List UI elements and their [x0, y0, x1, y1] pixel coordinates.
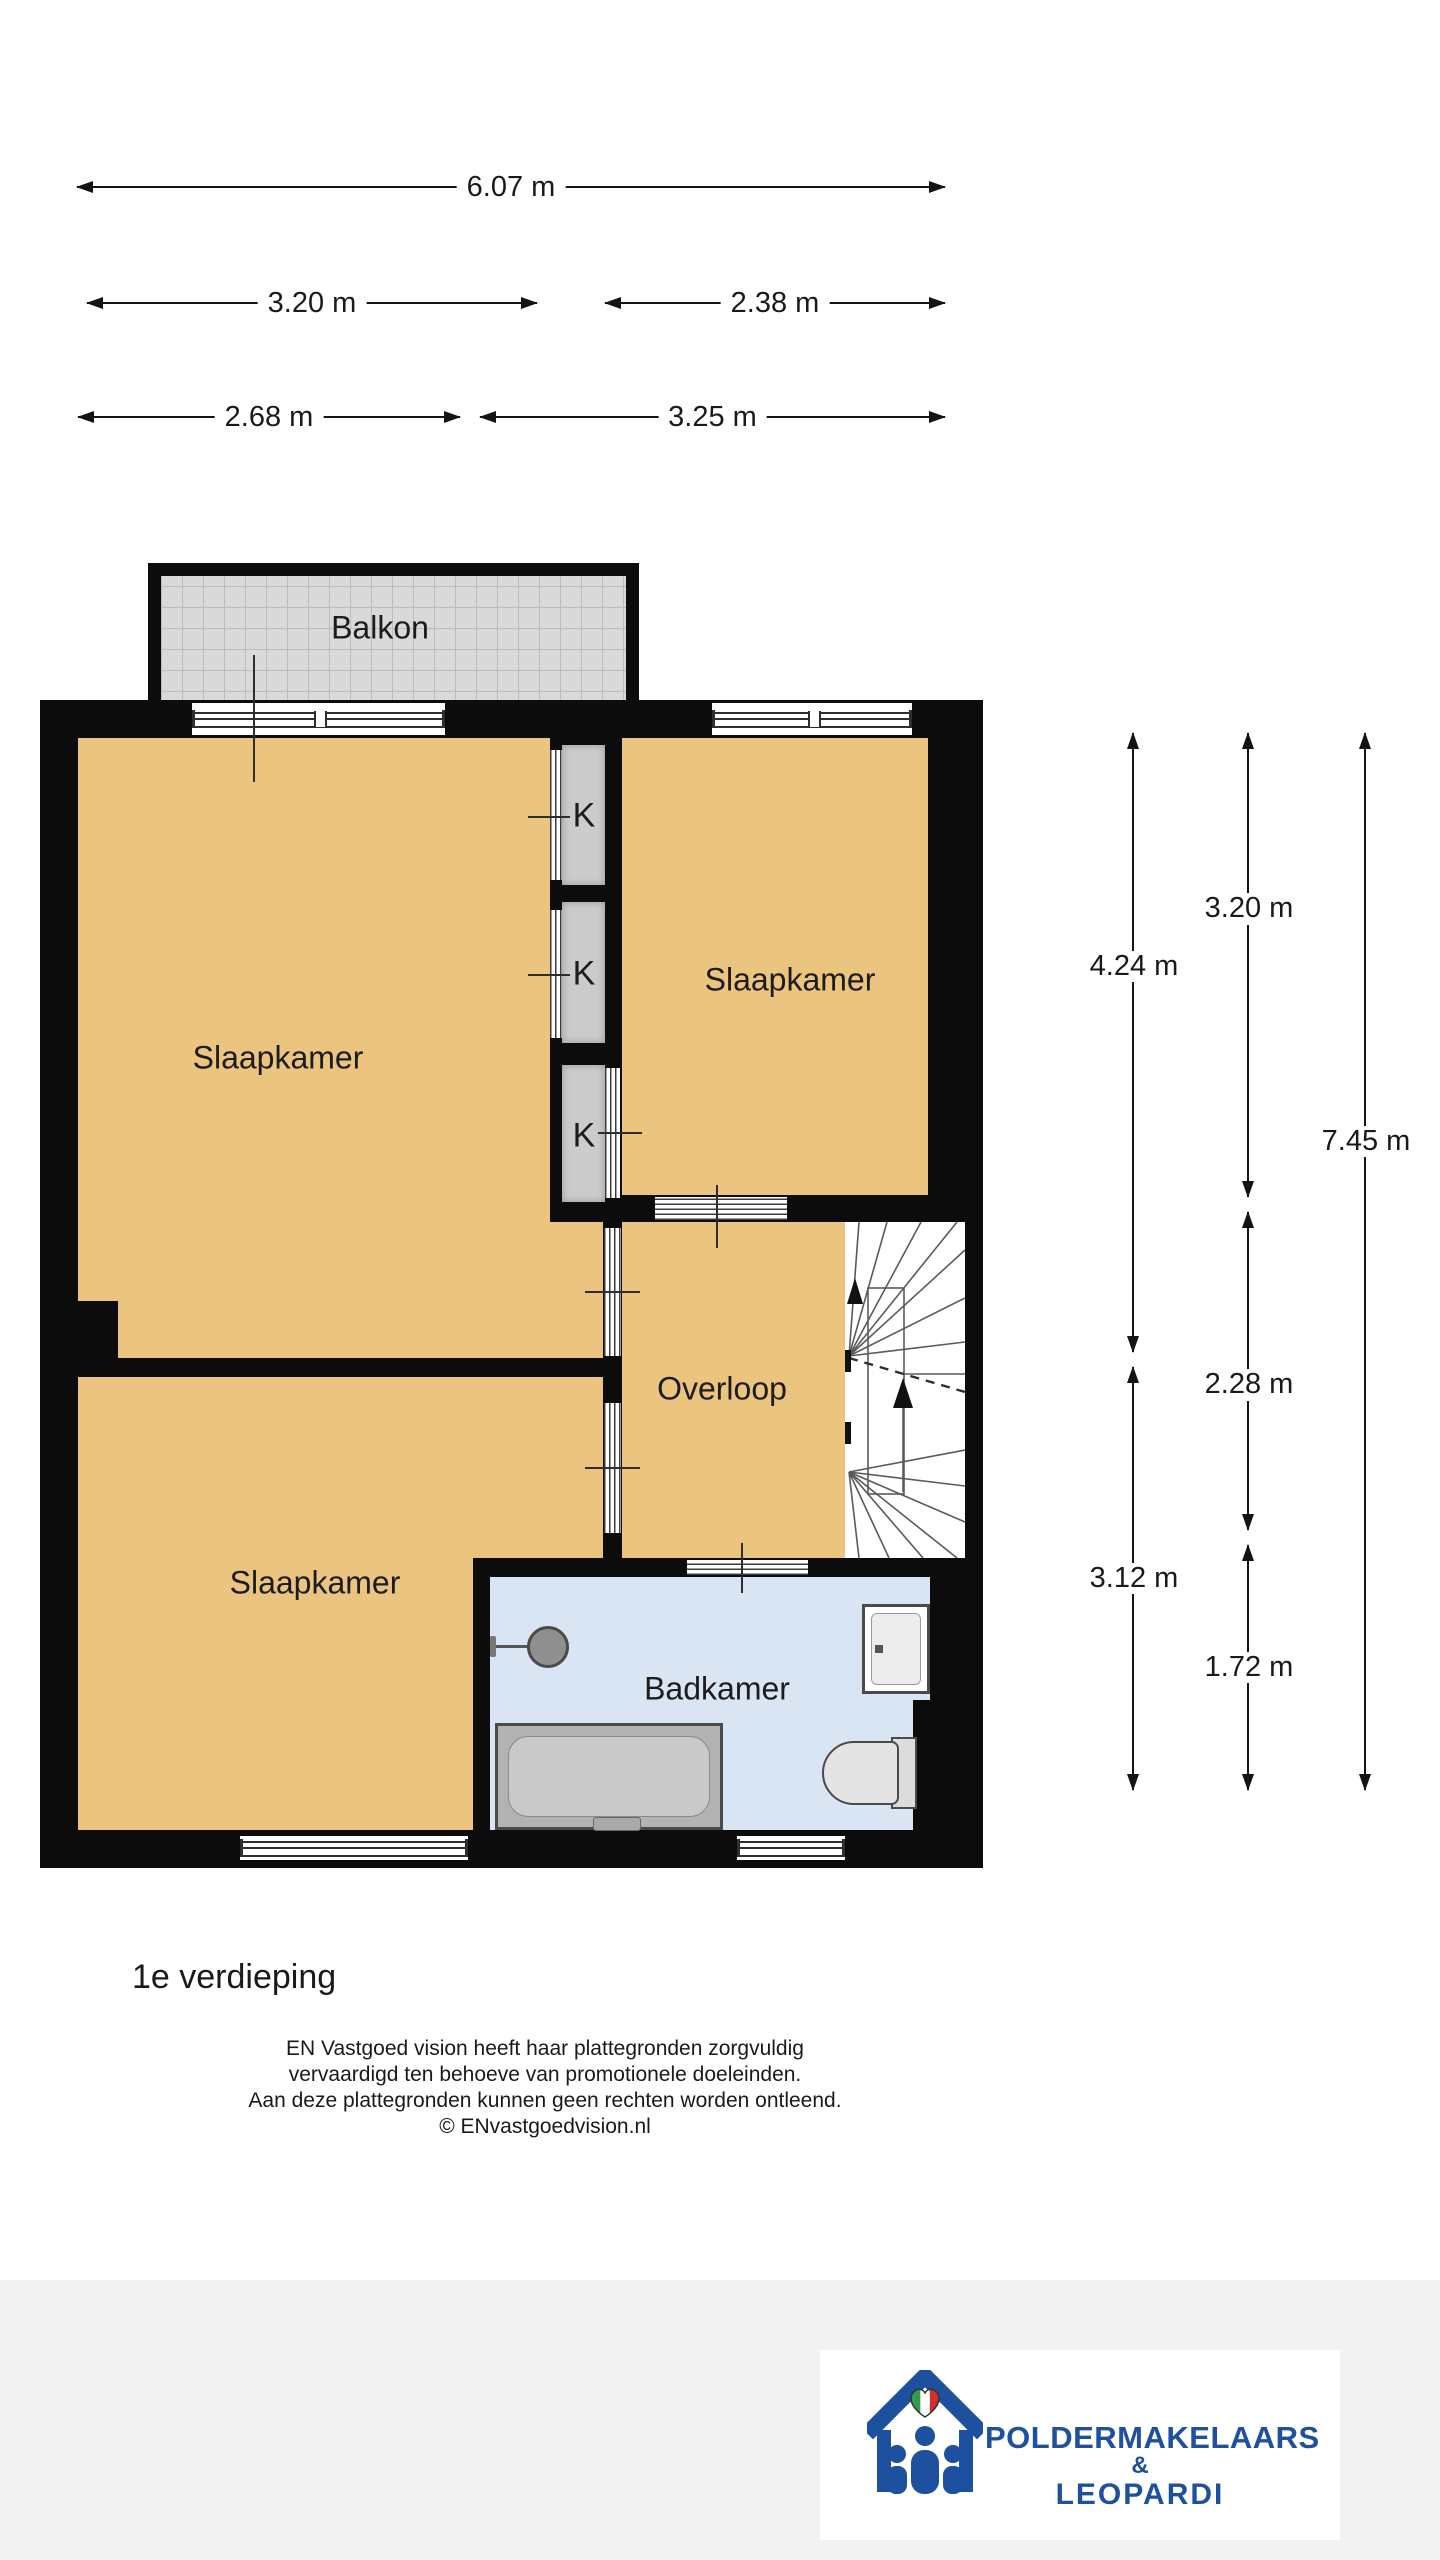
dim-label: 7.45 m — [1312, 1126, 1421, 1158]
bedroom-bottom-left-label: Slaapkamer — [230, 1565, 401, 1602]
sink — [862, 1604, 930, 1694]
dim-height-bathroom: 1.72 m — [1247, 1545, 1249, 1790]
window-mullion — [314, 711, 327, 727]
dim-label: 3.12 m — [1080, 1563, 1189, 1595]
wall-pier — [78, 1301, 118, 1377]
tick-closet-3 — [598, 1132, 642, 1134]
dim-height-bedroom-left: 4.24 m — [1132, 733, 1134, 1352]
dim-height-total: 7.45 m — [1364, 733, 1366, 1790]
faucet-mount — [490, 1636, 496, 1657]
wall-corner-block — [913, 1700, 983, 1868]
bathtub-inner — [508, 1736, 710, 1817]
bathroom-label: Badkamer — [644, 1671, 790, 1708]
balcony-label: Balkon — [331, 610, 429, 647]
bathtub — [495, 1723, 723, 1830]
tick-balcony-window — [253, 655, 255, 782]
window-cap — [842, 1839, 845, 1857]
tick-closet-2 — [528, 974, 570, 976]
bedroom-top-left-label: Slaapkamer — [193, 1040, 364, 1077]
tick-closet-1 — [528, 816, 570, 818]
bathtub-taps — [593, 1817, 641, 1831]
brand-name-2: LEOPARDI — [1056, 2478, 1225, 2512]
door-bedroom-right-landing — [655, 1197, 787, 1220]
disclaimer-line: © ENvastgoedvision.nl — [145, 2114, 945, 2140]
dim-label: 1.72 m — [1195, 1652, 1304, 1684]
window-cap — [712, 710, 715, 728]
window-cap — [909, 710, 912, 728]
floor-title: 1e verdieping — [132, 1958, 336, 1997]
tick-door-bathroom — [741, 1543, 743, 1593]
sink-tap — [875, 1645, 883, 1653]
dim-height-bedroom-bottom: 3.12 m — [1132, 1367, 1134, 1790]
window-bedroom-bottom — [240, 1836, 468, 1860]
window-mullion — [808, 711, 821, 727]
window-cap — [192, 710, 195, 728]
tick-door-bedroom-right — [716, 1185, 718, 1248]
closet-3-label: K — [573, 1117, 596, 1156]
brand-name: POLDERMAKELAARS — [985, 2420, 1320, 2456]
window-cap — [240, 1839, 243, 1857]
stairs-icon — [845, 1222, 965, 1558]
window-glazing — [242, 1841, 466, 1857]
dim-height-landing: 2.28 m — [1247, 1212, 1249, 1530]
disclaimer-line: EN Vastgoed vision heeft haar plattegron… — [145, 2036, 945, 2062]
washbasin — [527, 1626, 569, 1668]
closet-1-door — [550, 750, 562, 880]
window-cap — [442, 710, 445, 728]
brand-amp: & — [1131, 2452, 1148, 2480]
tick-door-top-left — [585, 1291, 640, 1293]
closet-1-label: K — [573, 797, 596, 836]
dim-label: 2.28 m — [1195, 1369, 1304, 1401]
window-bedroom-right — [712, 703, 912, 735]
toilet-bowl — [822, 1741, 899, 1805]
disclaimer-line: vervaardigd ten behoeve van promotionele… — [145, 2062, 945, 2088]
landing-label: Overloop — [657, 1371, 787, 1408]
stairwell — [845, 1222, 965, 1558]
disclaimer-line: Aan deze plattegronden kunnen geen recht… — [145, 2088, 945, 2114]
tick-door-bottom-left — [585, 1467, 640, 1469]
window-cap — [465, 1839, 468, 1857]
brand-house-icon — [867, 2370, 983, 2497]
closet-2-label: K — [573, 955, 596, 994]
dim-label: 4.24 m — [1080, 951, 1189, 983]
window-balcony — [192, 703, 445, 735]
floor-plan: Balkon — [0, 0, 1440, 2000]
dim-height-bedroom-right: 3.20 m — [1247, 733, 1249, 1197]
bedroom-right-label: Slaapkamer — [705, 962, 876, 999]
door-landing-bathroom — [687, 1560, 808, 1575]
room-bedroom-bottom-left-a — [78, 1377, 603, 1558]
window-cap — [737, 1839, 740, 1857]
disclaimer: EN Vastgoed vision heeft haar plattegron… — [145, 2036, 945, 2140]
dim-label: 3.20 m — [1195, 893, 1304, 925]
window-bathroom-bottom — [737, 1836, 845, 1860]
window-glazing — [739, 1841, 843, 1857]
